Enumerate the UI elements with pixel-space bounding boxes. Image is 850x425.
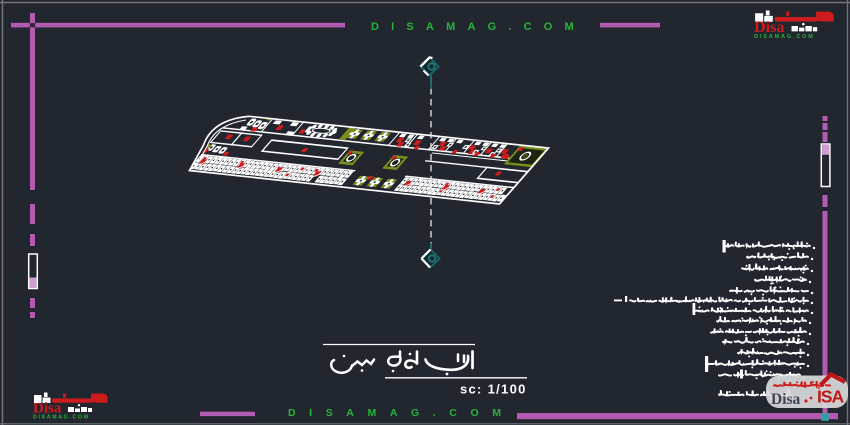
svg-text:DISAMAG.COM: DISAMAG.COM: [288, 407, 515, 419]
svg-text:DISAMAG.COM: DISAMAG.COM: [371, 21, 586, 33]
svg-text:sc: 1/100: sc: 1/100: [460, 382, 527, 397]
svg-text:ISA: ISA: [817, 387, 845, 407]
svg-text:DISAMAG.COM: DISAMAG.COM: [754, 34, 815, 40]
svg-text:DISAMAG.COM: DISAMAG.COM: [33, 414, 90, 420]
svg-text:Disa: Disa: [771, 391, 801, 408]
